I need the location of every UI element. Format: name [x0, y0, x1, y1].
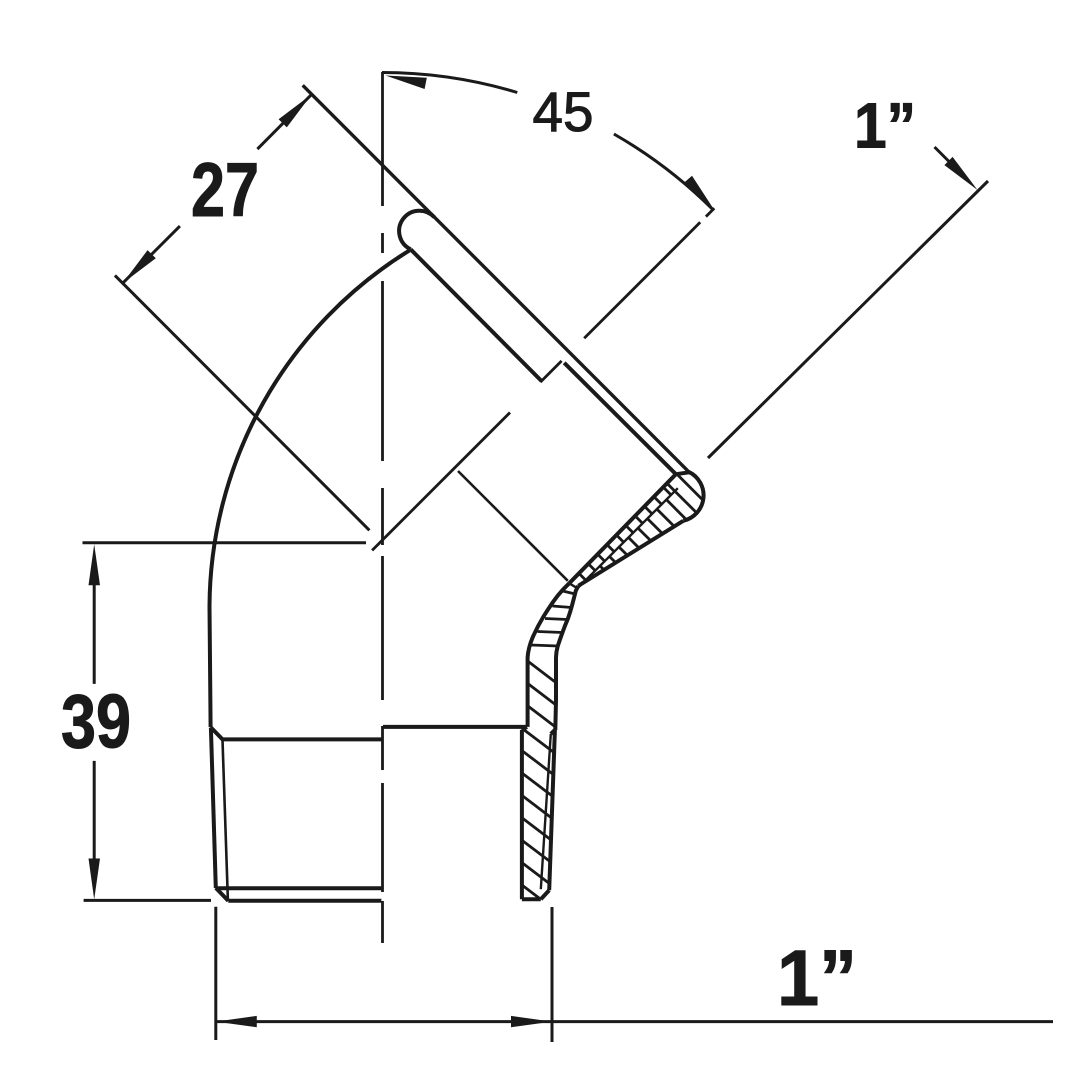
svg-text:27: 27 [191, 148, 259, 233]
svg-text:1”: 1” [777, 933, 857, 1022]
svg-text:1”: 1” [854, 90, 916, 162]
svg-text:45: 45 [533, 80, 594, 143]
svg-text:39: 39 [61, 680, 131, 765]
